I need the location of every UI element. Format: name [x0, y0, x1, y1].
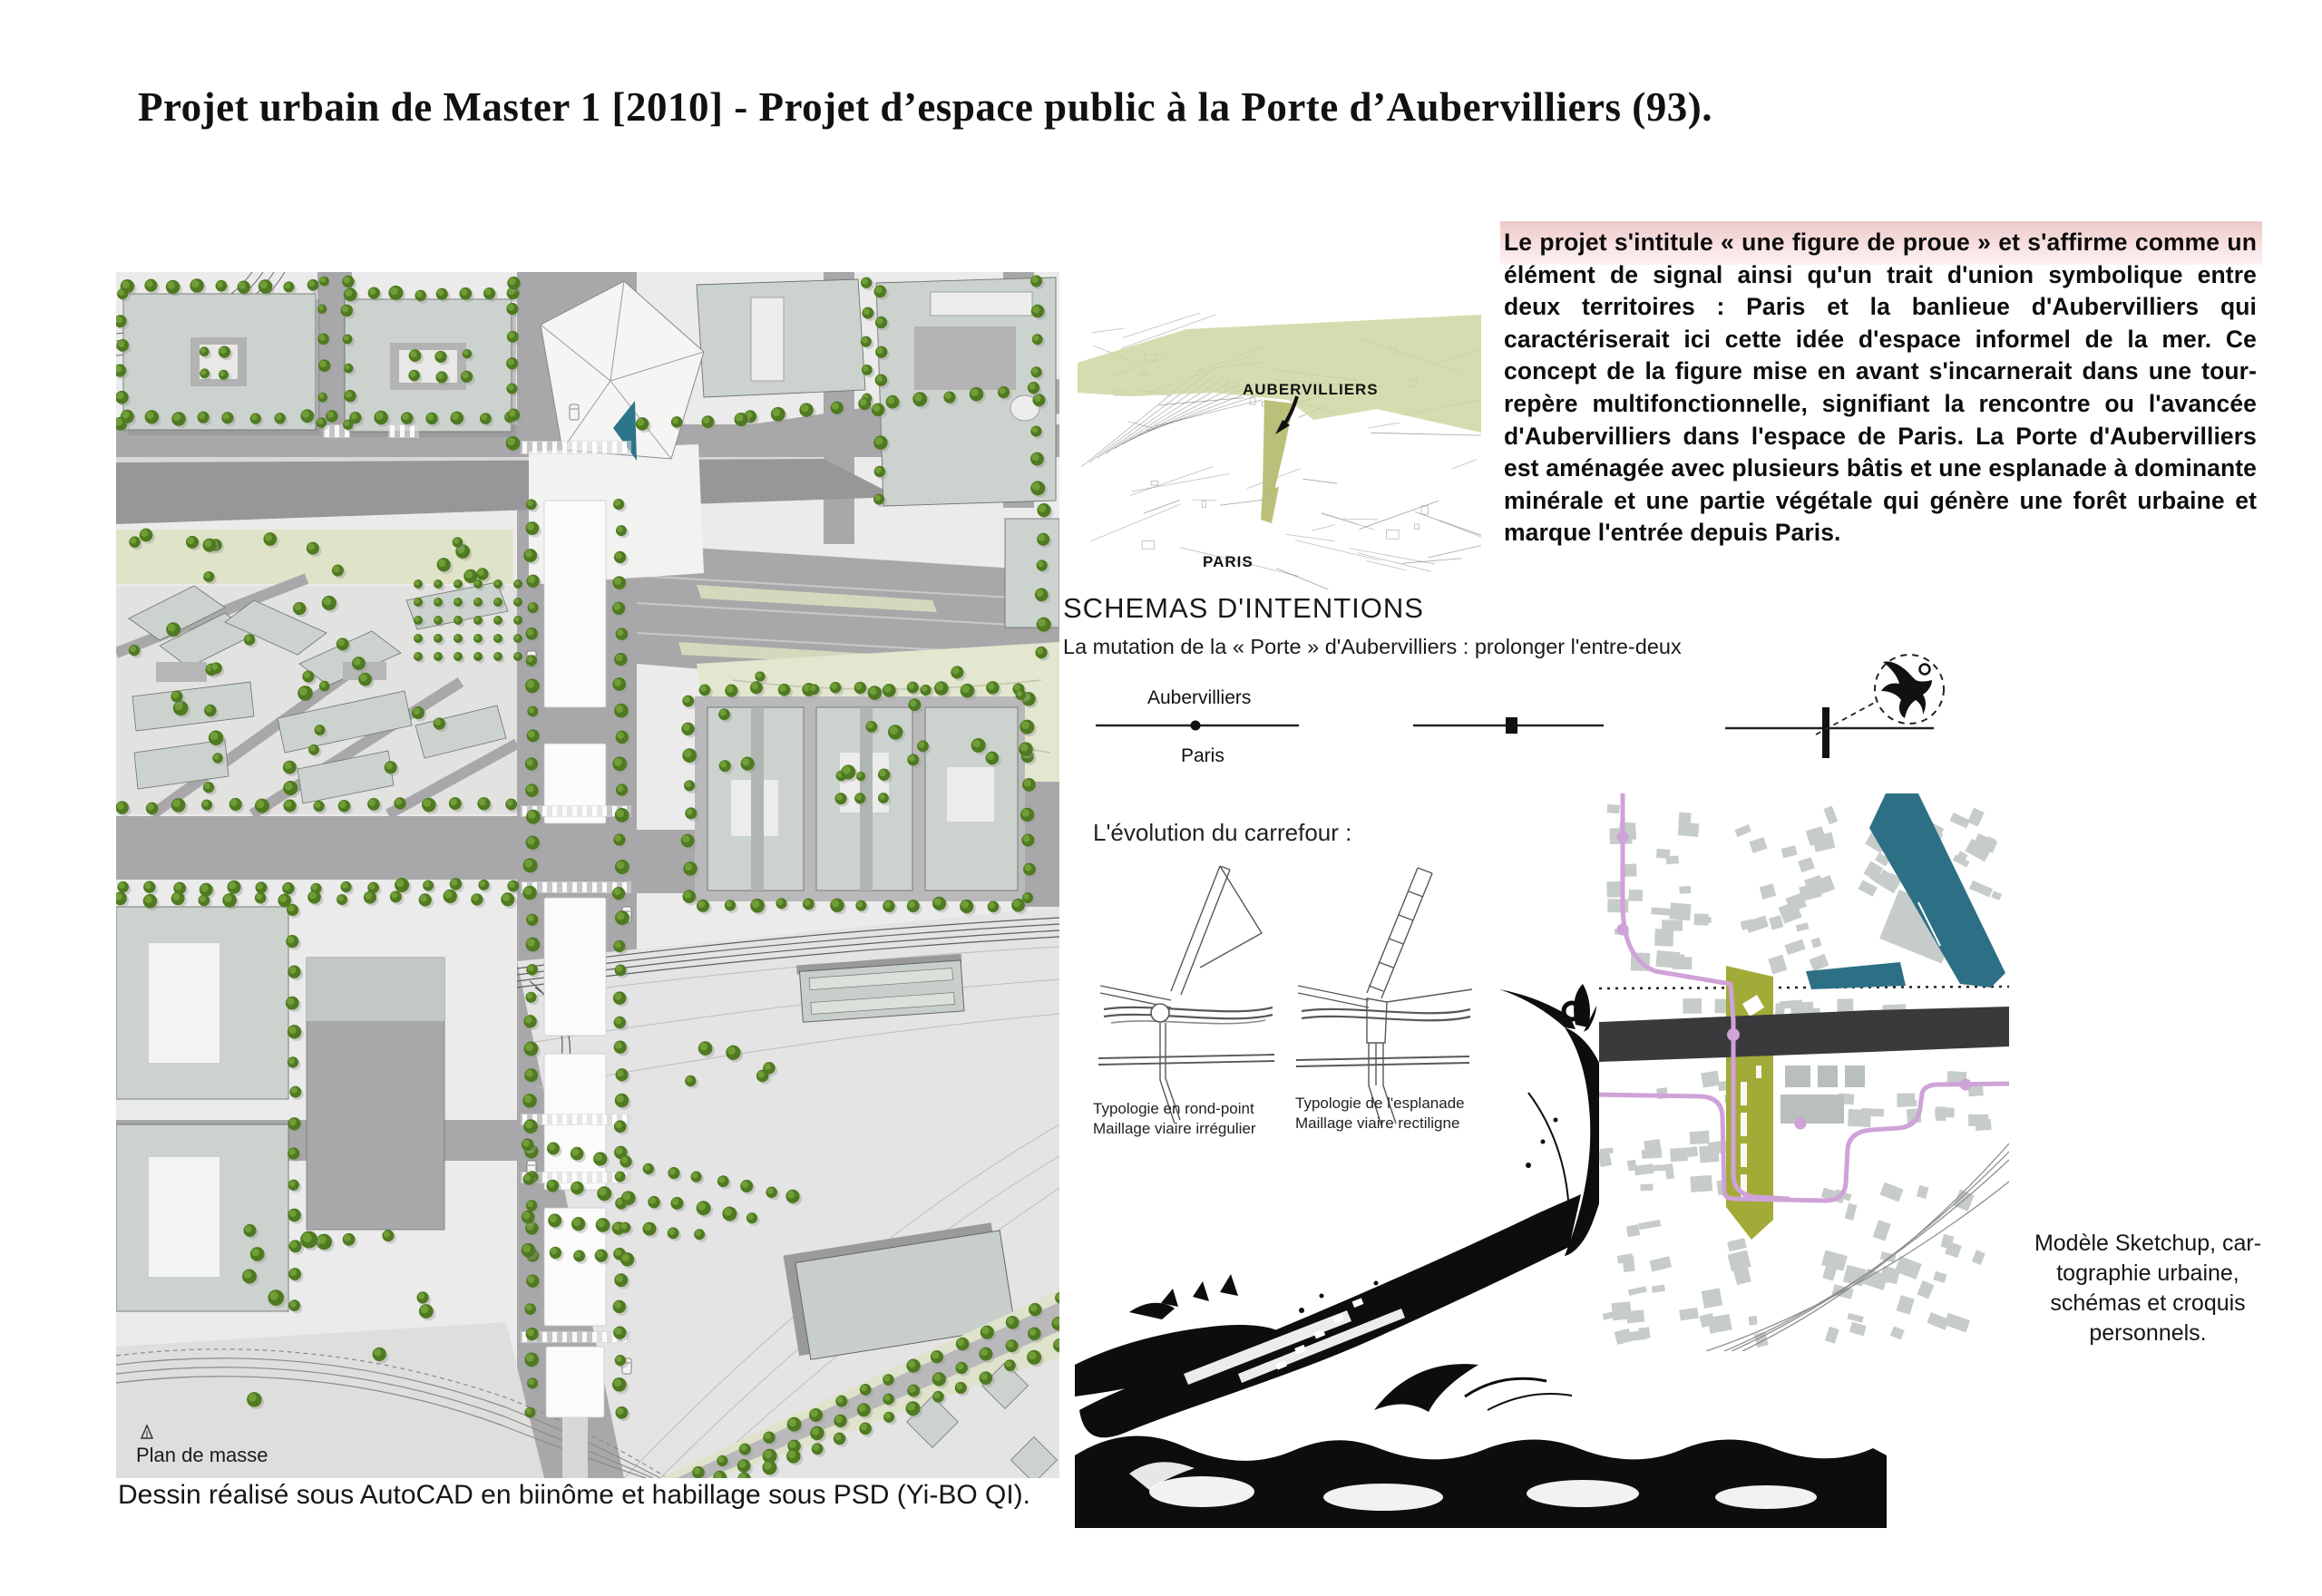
page-title: Projet urbain de Master 1 [2010] - Proje…: [118, 83, 1732, 131]
carrefour-heading: L'évolution du carrefour :: [1093, 819, 1351, 847]
context-map: AUBERVILLIERS PARIS: [1078, 313, 1481, 589]
schemas-heading: SCHEMAS D'INTENTIONS: [1063, 592, 1424, 625]
train-station: [796, 954, 965, 1023]
project-description: Le projet s'intitule « une figure de pro…: [1504, 227, 2257, 550]
diagram-label-aubervilliers: Aubervilliers: [1147, 687, 1251, 708]
diagram-node-square: [1506, 717, 1517, 734]
plan-label: Plan de masse: [136, 1444, 268, 1467]
right-map-caption: Modèle Sketchup, car- tographie urbaine,…: [2012, 1229, 2284, 1348]
diagram-label-paris: Paris: [1181, 745, 1224, 766]
esplanade: [544, 501, 606, 1417]
diagram-node-tower: [1822, 707, 1829, 758]
intention-diagrams: Aubervilliers Paris: [1079, 651, 1995, 801]
context-label-paris: PARIS: [1203, 553, 1254, 570]
context-label-aubervilliers: AUBERVILLIERS: [1243, 381, 1379, 398]
diagram-node-dot: [1191, 721, 1201, 731]
plan-caption: Dessin réalisé sous AutoCAD en biinôme e…: [118, 1480, 1030, 1511]
project-site-map: [1599, 793, 2009, 1351]
master-plan-map: [116, 272, 1059, 1478]
